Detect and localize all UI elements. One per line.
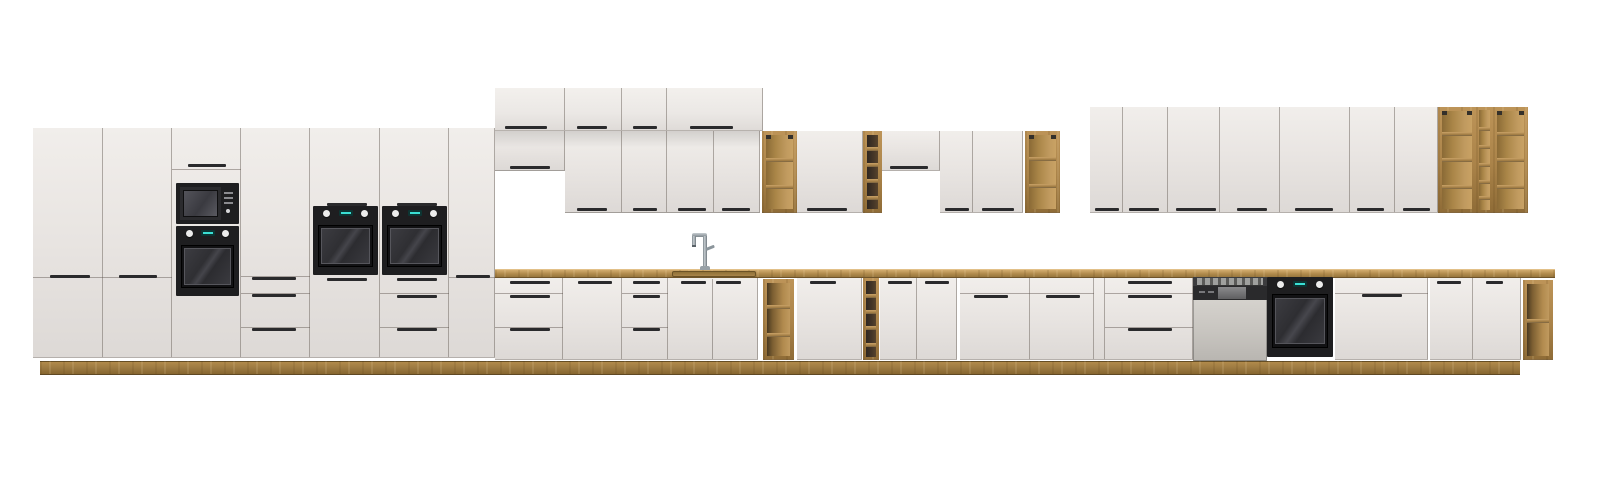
wall-cabinet	[667, 131, 714, 213]
shelf-board	[866, 343, 876, 347]
faucet-spout-tip	[692, 245, 696, 247]
wall-cabinet-tall	[1395, 107, 1438, 213]
base-cabinet	[797, 278, 862, 360]
shelf-board	[867, 163, 878, 167]
door-handle	[1128, 281, 1172, 284]
open-shelf-base-unit-interior	[767, 283, 790, 356]
base-cabinet	[1430, 278, 1473, 360]
top-wall-cabinet	[495, 88, 565, 131]
door-handle	[510, 166, 550, 169]
oven-knob	[323, 210, 330, 217]
door-handle	[681, 281, 706, 284]
shelf-bracket	[1051, 135, 1056, 139]
panel-divider	[622, 293, 668, 294]
door-handle	[577, 208, 607, 211]
door-handle	[578, 281, 612, 284]
faucet-base	[700, 266, 710, 270]
shelf-bracket	[788, 135, 793, 139]
shelf-board	[866, 294, 876, 298]
door-handle	[510, 281, 550, 284]
microwave-glass	[184, 191, 217, 216]
shelf-board	[1497, 158, 1524, 162]
shelf-board	[867, 196, 878, 200]
shelf-board	[1497, 185, 1524, 189]
base-drawer-unit-wide	[1105, 278, 1193, 360]
panel-divider	[1105, 293, 1193, 294]
oven-glass	[184, 248, 231, 285]
door-handle	[633, 328, 660, 331]
wall-cabinet-tall	[1090, 107, 1123, 213]
oven-knob	[1316, 281, 1323, 288]
door-handle	[1129, 208, 1159, 211]
door-handle	[1237, 208, 1267, 211]
oven-display-digits	[1295, 283, 1305, 285]
base-cabinet	[1473, 278, 1521, 360]
shelf-board	[1479, 145, 1490, 149]
door-handle	[633, 295, 660, 298]
door-handle	[577, 126, 607, 129]
base-cabinet	[917, 278, 957, 360]
door-handle	[888, 281, 912, 284]
door-handle	[188, 164, 226, 167]
door-handle	[1437, 281, 1461, 284]
door-handle	[456, 275, 490, 278]
oven-display-digits	[341, 212, 351, 214]
oven-knob	[1277, 281, 1284, 288]
door-handle	[510, 295, 550, 298]
door-handle	[327, 278, 367, 281]
wall-cabinet	[973, 131, 1023, 213]
dishwasher-panel-inset	[1218, 287, 1246, 299]
filler-panel	[1094, 278, 1105, 360]
panel-divider	[1030, 293, 1094, 294]
shelf-bracket	[1497, 111, 1502, 115]
microwave-button	[224, 202, 233, 204]
door-handle	[678, 208, 706, 211]
panel-divider	[380, 293, 449, 294]
base-drawer-unit	[622, 278, 668, 360]
door-handle	[397, 295, 437, 298]
base-drawer-unit	[495, 278, 563, 360]
wall-cabinet-tall	[1280, 107, 1350, 213]
door-handle	[397, 278, 437, 281]
door-handle	[1128, 328, 1172, 331]
door-divider	[712, 279, 713, 359]
top-wall-cabinet	[622, 88, 667, 131]
plinth	[40, 361, 1520, 375]
wall-cabinet-tall	[1350, 107, 1395, 213]
door-handle	[50, 275, 90, 278]
base-cabinet	[880, 278, 917, 360]
door-handle	[1357, 208, 1384, 211]
wall-cabinet	[622, 131, 667, 213]
shelf-board	[766, 158, 793, 162]
shelf-board	[766, 185, 793, 189]
shelf-board	[1527, 319, 1549, 323]
oven-glass	[1275, 298, 1325, 344]
dishwasher-tray	[1197, 278, 1263, 286]
open-shelf-wall-unit-interior	[766, 135, 793, 209]
shelf-board	[866, 310, 876, 314]
door-handle	[1046, 295, 1080, 298]
panel-divider	[960, 293, 1030, 294]
door-handle	[633, 281, 660, 284]
wall-cabinet	[714, 131, 760, 213]
door-handle	[1362, 294, 1402, 297]
door-handle	[982, 208, 1014, 211]
door-handle	[925, 281, 949, 284]
shelf-board	[1479, 163, 1490, 167]
door-handle	[505, 126, 547, 129]
door-handle	[1128, 295, 1172, 298]
oven-display-digits	[203, 232, 213, 234]
panel-divider	[172, 169, 241, 170]
door-handle	[1486, 281, 1503, 284]
shelf-board	[767, 333, 790, 337]
shelf-board	[1479, 196, 1490, 200]
panel-divider	[495, 293, 563, 294]
door-handle	[119, 275, 157, 278]
door-handle	[1176, 208, 1216, 211]
shelf-board	[1442, 158, 1472, 162]
oven-glass	[321, 228, 370, 264]
top-wall-cabinet	[565, 88, 622, 131]
shelf-bracket	[766, 135, 771, 139]
shelf-board	[1479, 180, 1490, 184]
microwave-knob	[226, 209, 230, 213]
kitchen-cabinet-set-image	[0, 0, 1600, 482]
wall-cabinet	[797, 131, 863, 213]
faucet-riser	[703, 236, 707, 270]
shelf-bracket	[1519, 111, 1524, 115]
wall-cabinet-short	[495, 131, 565, 171]
door-handle	[633, 126, 657, 129]
oven-knob	[186, 230, 193, 237]
sink-basin	[672, 271, 756, 277]
oven-knob	[430, 210, 437, 217]
oven-knob	[222, 230, 229, 237]
shelf-board	[1442, 132, 1472, 136]
shelf-bracket	[1029, 135, 1034, 139]
wine-shelf-column-interior	[1479, 110, 1490, 210]
door-handle	[252, 294, 296, 297]
shelf-bracket	[1467, 111, 1472, 115]
shelf-board	[866, 326, 876, 330]
wall-cabinet-tall	[1123, 107, 1168, 213]
door-handle	[397, 328, 437, 331]
tall-cabinet-door	[103, 128, 172, 358]
door-handle	[252, 328, 296, 331]
oven-glass	[390, 228, 439, 264]
oven-knob	[361, 210, 368, 217]
appliance-front-cabinet	[960, 278, 1030, 360]
door-handle	[945, 208, 969, 211]
door-handle	[890, 166, 928, 169]
wall-cabinet-short	[882, 131, 940, 171]
shelf-board	[1479, 127, 1490, 131]
shelf-bracket	[1442, 111, 1447, 115]
shelf-board	[767, 305, 790, 309]
shelf-board	[1029, 184, 1056, 188]
shelf-board	[1442, 185, 1472, 189]
dishwasher-body	[1193, 300, 1267, 361]
door-handle	[974, 295, 1008, 298]
door-handle	[807, 208, 847, 211]
door-handle	[510, 328, 550, 331]
microwave-button	[224, 197, 233, 199]
oven-display-digits	[410, 212, 420, 214]
base-cabinet	[563, 278, 622, 360]
shelf-board	[1497, 132, 1524, 136]
wall-cabinet-tall	[1220, 107, 1280, 213]
door-handle	[1403, 208, 1430, 211]
door-handle	[722, 208, 750, 211]
tall-cabinet-door	[33, 128, 103, 358]
door-handle	[252, 277, 296, 280]
sink-base-cabinet	[668, 278, 758, 360]
tall-cabinet-drawer-column	[241, 128, 310, 358]
door-handle	[690, 126, 733, 129]
door-handle	[633, 208, 657, 211]
door-handle	[1095, 208, 1119, 211]
wall-cabinet-tall	[1168, 107, 1220, 213]
shelf-board	[867, 179, 878, 183]
shelf-board	[867, 147, 878, 151]
door-handle	[810, 281, 836, 284]
countertop	[495, 269, 1555, 278]
appliance-front-cabinet	[1030, 278, 1094, 360]
wall-cabinet	[940, 131, 973, 213]
wall-cabinet	[565, 131, 622, 213]
dishwasher-button	[1208, 291, 1214, 293]
door-handle	[716, 281, 741, 284]
top-wall-cabinet	[667, 88, 763, 131]
dishwasher-button	[1199, 291, 1205, 293]
oven-knob	[392, 210, 399, 217]
open-shelf-wall-unit-interior	[1029, 135, 1056, 209]
tall-cabinet-door	[449, 128, 495, 358]
microwave-button	[224, 192, 233, 194]
appliance-front-cabinet-wide	[1335, 278, 1428, 360]
door-handle	[1295, 208, 1333, 211]
shelf-board	[1029, 157, 1056, 161]
